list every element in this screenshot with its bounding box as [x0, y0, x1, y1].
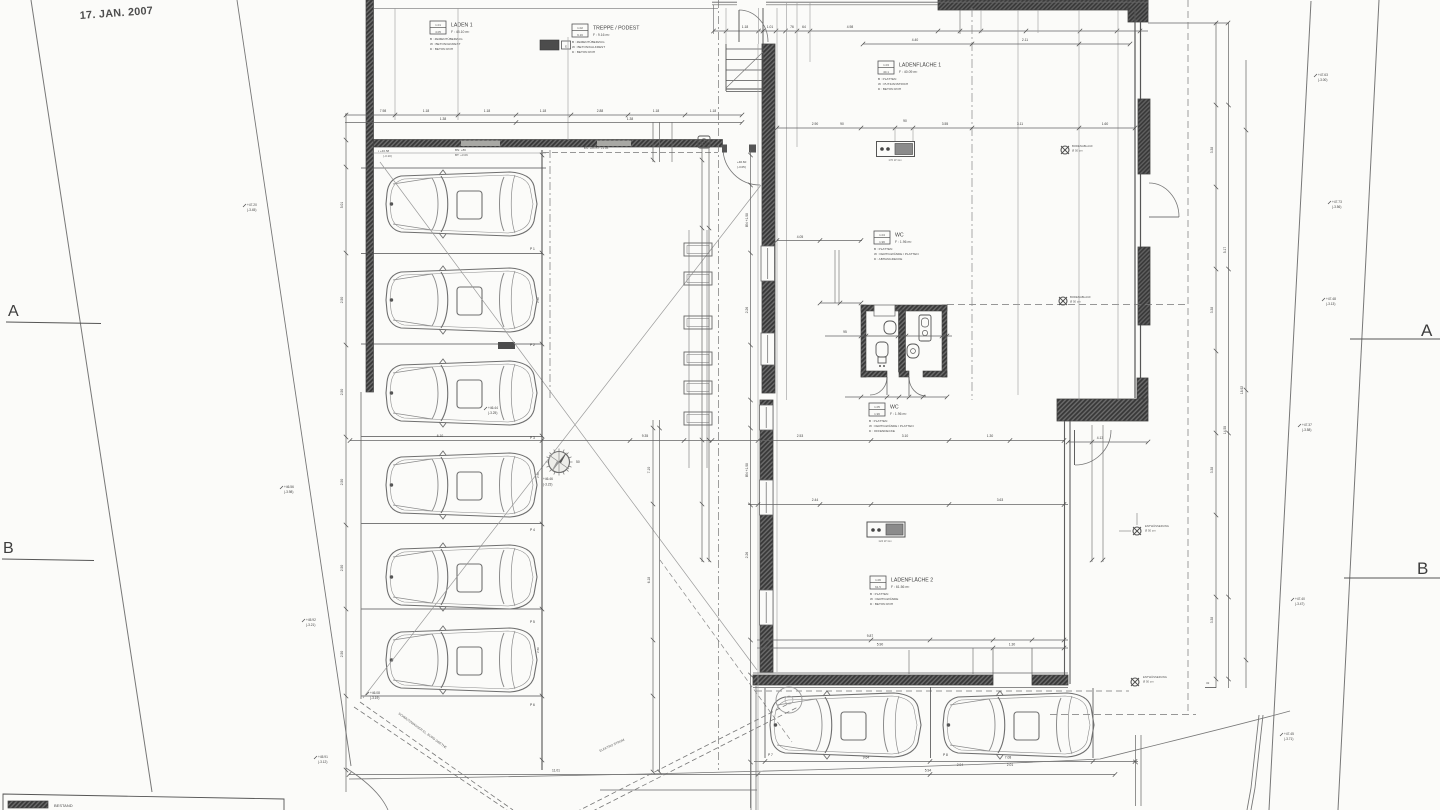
svg-text:P 7: P 7	[768, 753, 773, 757]
svg-text:124 W 1xx: 124 W 1xx	[878, 539, 892, 543]
svg-text:F : 9.16 m²: F : 9.16 m²	[593, 33, 610, 37]
svg-text:4.05: 4.05	[435, 30, 441, 34]
svg-text:D : ABHANGDECKE: D : ABHANGDECKE	[874, 257, 902, 261]
svg-text:7.98: 7.98	[380, 109, 387, 113]
svg-text:BODENABLAUF: BODENABLAUF	[1072, 144, 1093, 148]
svg-text:4.40: 4.40	[912, 38, 919, 42]
svg-text:Ø 50 cm: Ø 50 cm	[1143, 680, 1154, 684]
svg-text:W : BETON/KALKREST: W : BETON/KALKREST	[572, 45, 605, 49]
svg-text:2.50: 2.50	[340, 297, 344, 304]
svg-text:+47.37: +47.37	[1302, 423, 1312, 427]
svg-text:1.96: 1.96	[879, 240, 885, 244]
svg-text:7.10: 7.10	[647, 467, 651, 474]
svg-text:B : PLATTEN: B : PLATTEN	[878, 77, 896, 81]
svg-text:B : PLATTEN: B : PLATTEN	[869, 419, 887, 423]
svg-text:1.04: 1.04	[879, 233, 885, 237]
svg-text:1.30: 1.30	[987, 434, 994, 438]
svg-text:1.03: 1.03	[883, 63, 889, 67]
svg-text:W : FERTIGWÄNDE / PLATTEN: W : FERTIGWÄNDE / PLATTEN	[869, 424, 914, 428]
svg-text:5.01: 5.01	[340, 202, 344, 209]
svg-text:5.17: 5.17	[1223, 247, 1227, 254]
svg-text:2.50: 2.50	[536, 297, 540, 303]
svg-text:5.90: 5.90	[877, 643, 884, 647]
svg-text:2.50: 2.50	[536, 472, 540, 478]
svg-text:+46.60: +46.60	[737, 160, 747, 164]
svg-text:6.10: 6.10	[437, 434, 444, 438]
svg-text:9.64: 9.64	[863, 756, 870, 760]
svg-text:2.53: 2.53	[797, 434, 804, 438]
svg-text:2.44: 2.44	[812, 498, 819, 502]
svg-text:B : ZEMENTÜBERZUG: B : ZEMENTÜBERZUG	[572, 40, 605, 44]
svg-text:LADENFLÄCHE 2: LADENFLÄCHE 2	[891, 577, 933, 584]
svg-text:(-3.25): (-3.25)	[488, 411, 497, 415]
svg-text:14.55: 14.55	[1223, 426, 1227, 434]
svg-text:5.94: 5.94	[925, 769, 932, 773]
svg-text:+46.56: +46.56	[284, 485, 294, 489]
svg-text:4.13: 4.13	[1097, 436, 1104, 440]
svg-text:(-3.98): (-3.98)	[284, 490, 293, 494]
svg-text:(-3.21): (-3.21)	[306, 623, 315, 627]
svg-text:1.18: 1.18	[710, 109, 717, 113]
svg-text:WC: WC	[890, 405, 899, 411]
svg-text:D : BETON ROH: D : BETON ROH	[870, 602, 893, 606]
svg-text:1.60: 1.60	[1102, 122, 1109, 126]
svg-text:(-3.58): (-3.58)	[1302, 428, 1311, 432]
svg-text:1.05: 1.05	[874, 405, 880, 409]
svg-text:11.01: 11.01	[552, 769, 560, 773]
svg-text:170 W 1xx: 170 W 1xx	[888, 158, 902, 162]
svg-text:3.63: 3.63	[997, 498, 1004, 502]
svg-text:BODENABLAUF: BODENABLAUF	[1070, 295, 1091, 299]
svg-text:P 1: P 1	[530, 247, 535, 251]
svg-text:+47.40: +47.40	[1295, 597, 1305, 601]
svg-text:2.90: 2.90	[812, 122, 819, 126]
svg-text:+47.45: +47.45	[1284, 732, 1294, 736]
svg-text:D : BETON ROH: D : BETON ROH	[572, 50, 595, 54]
svg-text:W : FERTIGWÄNDE / PLATTEN: W : FERTIGWÄNDE / PLATTEN	[874, 252, 919, 256]
svg-text:+46.08: +46.08	[370, 691, 380, 695]
svg-text:LADEN 1: LADEN 1	[451, 23, 473, 29]
svg-text:P 4: P 4	[530, 528, 535, 532]
svg-text:+47.63: +47.63	[1318, 73, 1328, 77]
svg-text:2.50: 2.50	[340, 565, 344, 572]
svg-text:3.11: 3.11	[1017, 122, 1023, 126]
svg-text:BESTAND: BESTAND	[54, 803, 73, 808]
svg-text:W : PUTZ/ANSTRICH: W : PUTZ/ANSTRICH	[878, 82, 908, 86]
svg-text:1.18: 1.18	[540, 109, 547, 113]
svg-text:▪ +46.58: ▪ +46.58	[378, 149, 389, 153]
svg-text:1.02: 1.02	[577, 26, 583, 30]
svg-text:+47.20: +47.20	[247, 203, 257, 207]
svg-text:B : PLATTEN: B : PLATTEN	[874, 247, 892, 251]
svg-text:3.10: 3.10	[902, 434, 909, 438]
svg-text:9.35: 9.35	[642, 434, 649, 438]
svg-text:(-3.12): (-3.12)	[318, 760, 327, 764]
svg-text:W : BETON/GK/REST: W : BETON/GK/REST	[430, 42, 461, 46]
svg-text:3.38: 3.38	[1210, 617, 1214, 624]
svg-text:W : FERTIGWÄNDE: W : FERTIGWÄNDE	[870, 597, 898, 601]
svg-text:9.16: 9.16	[577, 33, 583, 37]
svg-text:2.26: 2.26	[745, 552, 749, 559]
svg-text:1.06: 1.06	[875, 578, 881, 582]
svg-text:+47.48: +47.48	[1326, 297, 1336, 301]
svg-text:(-3.10): (-3.10)	[383, 154, 392, 158]
svg-text:P 6: P 6	[530, 703, 535, 707]
svg-text:LADENFLÄCHE 1: LADENFLÄCHE 1	[899, 62, 941, 69]
svg-text:(-3.00): (-3.00)	[1318, 78, 1327, 82]
svg-text:BN +1.08: BN +1.08	[745, 463, 749, 477]
svg-text:BN +1.08: BN +1.08	[745, 213, 749, 227]
svg-text:4.98: 4.98	[847, 25, 854, 29]
svg-text:(-3.47): (-3.47)	[1295, 602, 1304, 606]
svg-text:50: 50	[576, 460, 580, 464]
svg-text:WC: WC	[895, 233, 904, 239]
svg-text:(-3.19): (-3.19)	[370, 696, 379, 700]
svg-text:F : 45.10 m²: F : 45.10 m²	[451, 30, 470, 34]
svg-text:F : 40.09 m²: F : 40.09 m²	[899, 70, 918, 74]
svg-text:1.18: 1.18	[742, 25, 749, 29]
svg-text:1.18: 1.18	[484, 109, 491, 113]
svg-text:A: A	[1421, 321, 1433, 340]
svg-text:BN: +86: BN: +86	[455, 148, 466, 152]
svg-text:2.50: 2.50	[536, 647, 540, 653]
svg-text:3.55: 3.55	[942, 122, 949, 126]
svg-text:BT: +3.06: BT: +3.06	[455, 153, 468, 157]
svg-text:B : PLATTEN: B : PLATTEN	[870, 592, 888, 596]
svg-text:Ø 50 cm: Ø 50 cm	[1145, 529, 1156, 533]
svg-text:2.88: 2.88	[597, 109, 604, 113]
svg-text:1.96: 1.96	[874, 412, 880, 416]
svg-text:P 5: P 5	[530, 620, 535, 624]
svg-text:3.38: 3.38	[1210, 467, 1214, 474]
svg-text:ENTWÄSSERUNG: ENTWÄSSERUNG	[1143, 675, 1167, 679]
svg-text:(-3.13): (-3.13)	[1326, 302, 1335, 306]
svg-text:(-3.71): (-3.71)	[1284, 737, 1293, 741]
svg-text:1.01: 1.01	[767, 25, 774, 29]
svg-text:1.38: 1.38	[627, 117, 634, 121]
svg-text:64: 64	[802, 25, 806, 29]
svg-text:Ø 50 cm: Ø 50 cm	[1072, 149, 1083, 153]
svg-text:(-3.05): (-3.05)	[737, 165, 746, 169]
svg-text:ENTWÄSSERUNG: ENTWÄSSERUNG	[1145, 524, 1169, 528]
svg-text:76: 76	[790, 25, 794, 29]
svg-text:+47.73: +47.73	[1332, 200, 1342, 204]
svg-text:6.18: 6.18	[647, 577, 651, 584]
svg-text:1.18: 1.18	[423, 109, 430, 113]
svg-text:D : BETON ROH: D : BETON ROH	[878, 87, 901, 91]
svg-text:90: 90	[903, 119, 907, 123]
svg-text:E: E	[565, 45, 567, 49]
svg-text:3.38: 3.38	[1210, 307, 1214, 314]
svg-text:2.11: 2.11	[1022, 38, 1028, 42]
svg-text:2.50: 2.50	[340, 389, 344, 396]
svg-text:TREPPE / PODEST: TREPPE / PODEST	[593, 26, 640, 32]
svg-text:7.08: 7.08	[1005, 756, 1012, 760]
svg-text:(-3.23): (-3.23)	[543, 483, 552, 487]
svg-text:F : 1.96 m²: F : 1.96 m²	[890, 412, 907, 416]
svg-text:B: B	[1417, 559, 1428, 578]
svg-text:+46.44: +46.44	[488, 406, 498, 410]
svg-text:BN: +86 BT: +3.06: BN: +86 BT: +3.06	[584, 146, 609, 150]
svg-text:2.26: 2.26	[745, 307, 749, 314]
svg-text:2.50: 2.50	[340, 479, 344, 486]
svg-text:+45.92: +45.92	[306, 618, 316, 622]
svg-text:95: 95	[843, 330, 847, 334]
svg-text:P 2: P 2	[530, 343, 535, 347]
svg-text:2.01: 2.01	[1007, 763, 1014, 767]
svg-text:90: 90	[840, 122, 844, 126]
svg-text:+45.91: +45.91	[318, 755, 328, 759]
svg-text:(-3.45): (-3.45)	[247, 208, 256, 212]
svg-text:F : 61.56 m²: F : 61.56 m²	[891, 585, 910, 589]
svg-text:D : OFFENDECKE: D : OFFENDECKE	[869, 429, 895, 433]
svg-text:1.30: 1.30	[1009, 643, 1016, 647]
svg-text:+46.46: +46.46	[543, 477, 553, 481]
svg-text:F : 1.96 m²: F : 1.96 m²	[895, 240, 912, 244]
svg-text:1.38: 1.38	[440, 117, 447, 121]
svg-text:2.50: 2.50	[340, 651, 344, 658]
svg-text:32: 32	[1206, 681, 1210, 685]
svg-text:A: A	[8, 303, 19, 320]
svg-text:(-3.56): (-3.56)	[1332, 205, 1341, 209]
svg-text:D : BETON ROH: D : BETON ROH	[430, 47, 453, 51]
svg-text:P 3: P 3	[530, 436, 535, 440]
svg-text:40.1: 40.1	[883, 70, 889, 74]
svg-text:1.18: 1.18	[653, 109, 660, 113]
svg-text:1.01: 1.01	[435, 23, 441, 27]
svg-text:18.92: 18.92	[1240, 386, 1244, 394]
svg-text:61.5: 61.5	[875, 585, 881, 589]
svg-text:9.87: 9.87	[867, 634, 874, 638]
svg-text:Ø 50 cm: Ø 50 cm	[1070, 300, 1081, 304]
svg-text:B: B	[3, 540, 14, 557]
svg-text:4.05: 4.05	[797, 235, 804, 239]
svg-text:P 8: P 8	[943, 753, 948, 757]
svg-text:3.38: 3.38	[1210, 147, 1214, 154]
